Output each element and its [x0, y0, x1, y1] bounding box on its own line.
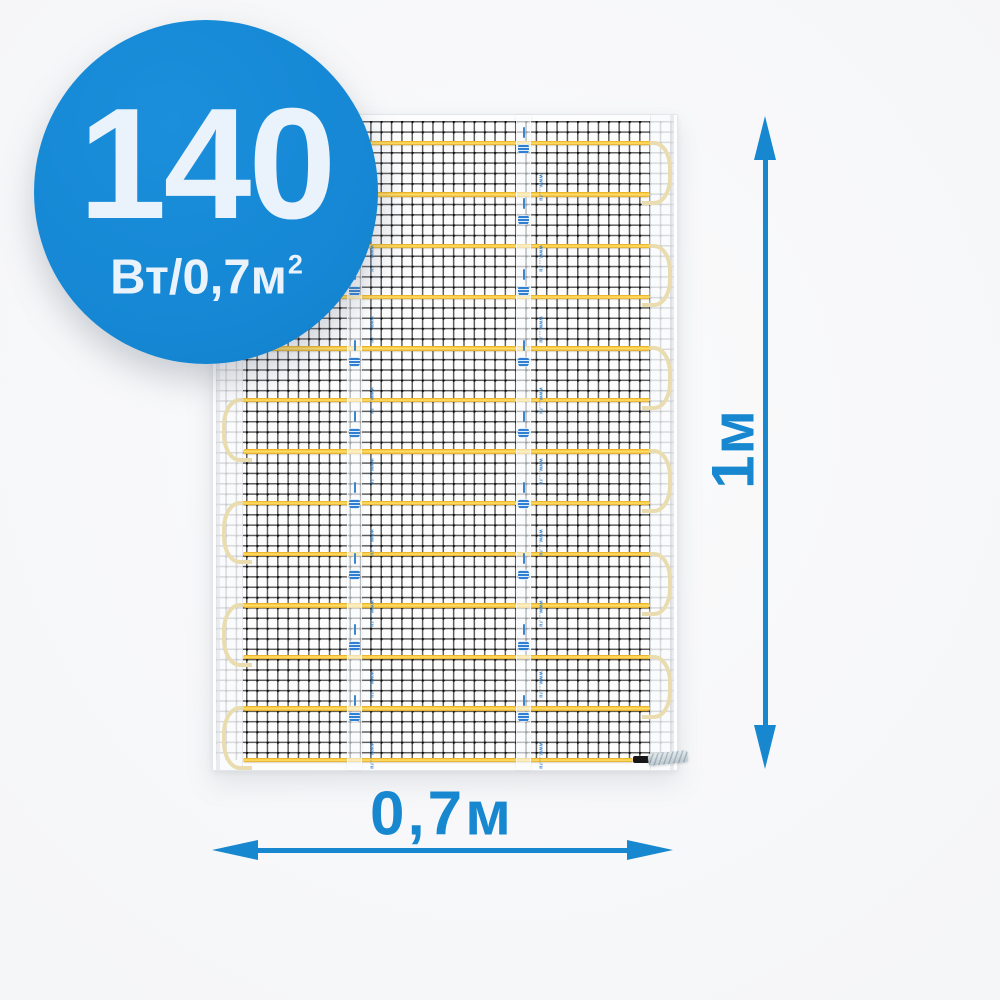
tape-dash	[523, 340, 525, 351]
tape-micro-text: www.....ru	[341, 672, 375, 687]
power-badge: 140 Вт/0,7м2	[34, 20, 378, 364]
height-arrowhead-top-icon	[754, 116, 776, 160]
tape-brand-logo-icon	[349, 286, 360, 296]
tape-brand-mark: www.....ru	[347, 482, 362, 546]
tape-brand-logo-icon	[518, 570, 529, 580]
tape-brand-mark: www.....ru	[516, 127, 531, 191]
tape-micro-text: www.....ru	[341, 317, 375, 332]
tape-brand-mark: www.....ru	[516, 695, 531, 759]
tape-micro-text: www.....ru	[510, 672, 544, 687]
tape-brand-logo-icon	[349, 357, 360, 367]
power-value: 140	[79, 85, 334, 243]
product-image: www.....ruwww.....ruwww.....ruwww.....ru…	[0, 0, 1000, 1000]
power-unit-superscript: 2	[288, 249, 303, 279]
tape-micro-text: www.....ru	[510, 459, 544, 474]
tape-brand-mark: www.....ru	[347, 624, 362, 688]
tape-micro-text: www.....ru	[341, 388, 375, 403]
tape-dash	[354, 695, 356, 706]
tape-brand-logo-icon	[518, 144, 529, 154]
tape-dash	[523, 411, 525, 422]
width-arrowhead-right-icon	[627, 840, 673, 860]
tape-brand-logo-icon	[349, 570, 360, 580]
height-dimension-label: 1м	[699, 409, 768, 489]
tape-brand-mark: www.....ru	[347, 553, 362, 617]
tape-brand-mark: www.....ru	[347, 340, 362, 404]
tape-micro-text: www.....ru	[510, 388, 544, 403]
tape-brand-logo-icon	[518, 286, 529, 296]
tape-dash	[354, 411, 356, 422]
tape-brand-mark: www.....ru	[516, 269, 531, 333]
tape-dash	[354, 553, 356, 564]
tape-brand-mark: www.....ru	[516, 411, 531, 475]
tape-brand-logo-icon	[349, 499, 360, 509]
tape-micro-text: www.....ru	[341, 459, 375, 474]
tape-brand-logo-icon	[518, 712, 529, 722]
tape-brand-mark: www.....ru	[347, 411, 362, 475]
tape-brand-mark: www.....ru	[347, 695, 362, 759]
tape-dash	[523, 198, 525, 209]
width-dimension-label: 0,7м	[370, 779, 514, 850]
tape-brand-logo-icon	[349, 712, 360, 722]
tape-brand-logo-icon	[518, 499, 529, 509]
tape-dash	[523, 553, 525, 564]
tape-micro-text: www.....ru	[341, 530, 375, 545]
fixing-tape-strip: www.....ruwww.....ruwww.....ruwww.....ru…	[516, 115, 531, 770]
tape-brand-mark: www.....ru	[516, 198, 531, 262]
tape-dash	[354, 482, 356, 493]
tape-dash	[523, 695, 525, 706]
tape-brand-logo-icon	[349, 428, 360, 438]
width-arrowhead-left-icon	[212, 840, 258, 860]
tape-brand-mark: www.....ru	[516, 340, 531, 404]
tape-brand-mark: www.....ru	[516, 553, 531, 617]
tape-brand-logo-icon	[518, 641, 529, 651]
tape-dash	[523, 127, 525, 138]
tape-dash	[354, 624, 356, 635]
tape-brand-logo-icon	[518, 215, 529, 225]
tape-dash	[523, 269, 525, 280]
tape-micro-text: www.....ru	[510, 601, 544, 616]
height-arrowhead-bottom-icon	[754, 725, 776, 769]
tape-micro-text: www.....ru	[510, 530, 544, 545]
tape-micro-text: www.....ru	[510, 743, 544, 758]
tape-micro-text: www.....ru	[510, 246, 544, 261]
tape-brand-logo-icon	[349, 641, 360, 651]
tape-micro-text: www.....ru	[510, 317, 544, 332]
tape-brand-logo-icon	[518, 428, 529, 438]
power-unit: Вт/0,7м2	[110, 254, 302, 303]
tape-brand-mark: www.....ru	[516, 482, 531, 546]
tape-micro-text: www.....ru	[341, 601, 375, 616]
tape-dash	[523, 624, 525, 635]
tape-brand-logo-icon	[518, 357, 529, 367]
tape-micro-text: www.....ru	[341, 743, 375, 758]
tape-brand-mark: www.....ru	[516, 624, 531, 688]
tape-micro-text: www.....ru	[510, 175, 544, 190]
tape-dash	[354, 340, 356, 351]
tape-dash	[523, 482, 525, 493]
